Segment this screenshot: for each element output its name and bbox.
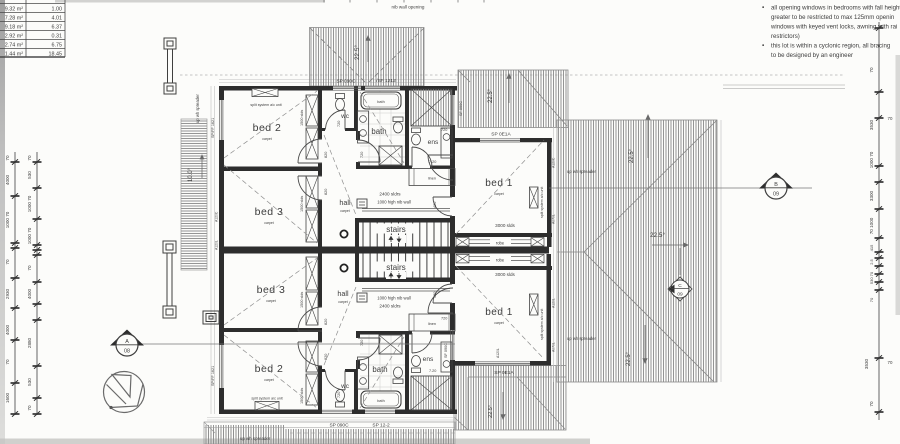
svg-text:nib wall opening: nib wall opening [392, 5, 425, 10]
svg-text:carpet: carpet [264, 378, 273, 382]
svg-text:carpet: carpet [338, 300, 347, 304]
svg-text:restrictors): restrictors) [771, 33, 800, 40]
svg-text:up wh spreader: up wh spreader [567, 336, 596, 341]
svg-text:420: 420 [433, 202, 437, 208]
svg-text:2.92 m²: 2.92 m² [5, 34, 23, 40]
svg-text:820: 820 [324, 354, 328, 360]
svg-text:3530: 3530 [864, 358, 869, 369]
svg-text:C: C [678, 283, 682, 289]
svg-text:720: 720 [441, 317, 447, 321]
svg-text:1500 slds: 1500 slds [300, 196, 304, 212]
svg-text:SP/FF 1621: SP/FF 1621 [211, 118, 215, 138]
svg-text:A: A [125, 339, 129, 345]
svg-text:ens: ens [428, 139, 439, 146]
svg-text:70: 70 [27, 405, 32, 411]
svg-text:1000 70: 1000 70 [869, 151, 874, 168]
svg-text:SF 090C: SF 090C [444, 343, 448, 358]
svg-text:720: 720 [441, 128, 447, 132]
svg-text:08: 08 [124, 349, 130, 355]
svg-text:18.45: 18.45 [49, 52, 63, 58]
svg-text:1600: 1600 [5, 392, 10, 403]
svg-text:70: 70 [27, 155, 32, 161]
svg-text:22.5°: 22.5° [488, 88, 494, 103]
svg-text:greater to be restricted to ma: greater to be restricted to max 125mm op… [771, 14, 894, 21]
svg-text:up wh spreader: up wh spreader [195, 94, 200, 123]
svg-text:1000 high nib wall: 1000 high nib wall [377, 296, 411, 301]
svg-text:A120L: A120L [215, 240, 219, 250]
svg-text:split system a/c unit: split system a/c unit [251, 397, 282, 401]
svg-text:bed 2: bed 2 [253, 122, 282, 134]
svg-text:3530: 3530 [869, 119, 874, 130]
svg-text:70: 70 [27, 265, 32, 271]
svg-text:6.37: 6.37 [52, 25, 63, 31]
svg-text:09: 09 [773, 192, 779, 198]
svg-text:carpet: carpet [340, 209, 349, 213]
svg-text:7.20: 7.20 [429, 369, 436, 373]
svg-text:A120L: A120L [496, 348, 500, 358]
svg-text:hall: hall [339, 198, 351, 207]
svg-text:SP 12-2: SP 12-2 [372, 423, 390, 429]
svg-text:70: 70 [888, 360, 893, 365]
svg-text:1000 70: 1000 70 [27, 195, 32, 212]
svg-text:bath: bath [377, 100, 384, 104]
svg-text:2.5: 2.5 [869, 258, 874, 264]
svg-text:70: 70 [869, 297, 874, 302]
svg-text:bath: bath [372, 365, 387, 374]
svg-text:530: 530 [27, 171, 32, 179]
svg-text:720: 720 [360, 152, 364, 158]
svg-text:up wh spreader: up wh spreader [240, 436, 271, 441]
svg-text:70: 70 [888, 116, 893, 121]
svg-text:/SF 1212: /SF 1212 [376, 78, 396, 84]
svg-text:22.5°: 22.5° [626, 351, 632, 366]
svg-text:linen: linen [428, 322, 436, 326]
svg-text:1000 high nib wall: 1000 high nib wall [377, 200, 411, 205]
svg-text:robe: robe [496, 257, 505, 262]
svg-text:70: 70 [869, 67, 874, 73]
svg-text:70: 70 [869, 401, 874, 407]
svg-text:3000 slds: 3000 slds [495, 223, 515, 228]
svg-text:70: 70 [5, 155, 10, 161]
svg-text:1000 70: 1000 70 [27, 227, 32, 244]
svg-text:1500 slds: 1500 slds [300, 292, 304, 308]
svg-text:bath: bath [377, 399, 384, 403]
svg-text:A120C: A120C [552, 157, 556, 168]
svg-text:bath: bath [371, 127, 386, 136]
svg-text:4000: 4000 [5, 324, 10, 335]
svg-text:SP 0E1A: SP 0E1A [494, 370, 514, 376]
svg-text:2.74 m²: 2.74 m² [5, 43, 23, 49]
svg-text:A070L: A070L [552, 342, 556, 352]
svg-text:up wh spreader: up wh spreader [567, 169, 596, 174]
svg-text:10.0°: 10.0° [188, 167, 194, 182]
svg-text:2880: 2880 [27, 337, 32, 348]
svg-text:SP 0E1A: SP 0E1A [491, 132, 511, 138]
svg-text:carpet: carpet [266, 299, 275, 303]
svg-text:1.44 m²: 1.44 m² [5, 52, 23, 58]
svg-text:SF 090C: SF 090C [459, 101, 463, 116]
svg-text:9.32 m²: 9.32 m² [5, 7, 23, 13]
svg-text:ens: ens [423, 356, 434, 363]
svg-text:robe: robe [496, 240, 505, 245]
svg-text:A120L: A120L [552, 298, 556, 308]
svg-text:4.01: 4.01 [52, 16, 63, 22]
svg-text:SP 090C: SP 090C [336, 79, 356, 85]
svg-text:415: 415 [869, 244, 874, 251]
svg-text:carpet: carpet [494, 321, 503, 325]
svg-text:carpet: carpet [262, 137, 271, 141]
svg-text:720: 720 [360, 340, 364, 346]
svg-text:820: 820 [324, 319, 328, 325]
svg-text:windows with keyed vent locks,: windows with keyed vent locks, awning wi… [770, 24, 897, 31]
svg-text:hall: hall [337, 289, 349, 298]
svg-text:820: 820 [324, 152, 328, 158]
svg-text:split system a/c unit: split system a/c unit [250, 103, 281, 107]
svg-text:A070L: A070L [552, 214, 556, 224]
svg-text:bed 3: bed 3 [257, 284, 286, 296]
svg-text:split system a/c unit: split system a/c unit [540, 309, 544, 340]
svg-text:530: 530 [27, 378, 32, 386]
svg-text:linen: linen [428, 177, 436, 181]
svg-text:70 1000: 70 1000 [869, 217, 874, 234]
svg-text:all opening windows in bedroom: all opening windows in bedrooms with fal… [771, 5, 900, 12]
svg-text:bed 3: bed 3 [255, 206, 284, 218]
svg-text:70: 70 [5, 359, 10, 365]
svg-text:820: 820 [324, 189, 328, 195]
svg-text:1000 70: 1000 70 [5, 211, 10, 228]
svg-text:0.31: 0.31 [52, 34, 63, 40]
svg-text:09: 09 [677, 292, 683, 298]
svg-text:70: 70 [5, 259, 10, 265]
svg-text:420: 420 [433, 292, 437, 298]
svg-text:530 70: 530 70 [869, 271, 874, 284]
svg-text:this lot is within a cyclonic: this lot is within a cyclonic region, al… [771, 43, 890, 50]
svg-text:6.75: 6.75 [52, 43, 63, 49]
svg-text:3300: 3300 [869, 190, 874, 201]
svg-text:22.5°: 22.5° [353, 45, 361, 60]
svg-text:stairs: stairs [386, 225, 406, 234]
svg-text:SP 090C: SP 090C [329, 423, 349, 429]
svg-text:B: B [774, 182, 778, 188]
svg-text:7.20: 7.20 [429, 160, 436, 164]
svg-text:to be designed by an engineer: to be designed by an engineer [771, 52, 853, 59]
svg-text:22.5°: 22.5° [629, 148, 635, 163]
svg-text:2400 sldrs: 2400 sldrs [379, 304, 401, 309]
svg-text:22.5°: 22.5° [650, 231, 665, 239]
svg-text:1500 slds: 1500 slds [300, 110, 304, 126]
svg-text:22.5°: 22.5° [488, 405, 494, 418]
svg-text:720: 720 [337, 121, 341, 127]
svg-text:2400 sldrs: 2400 sldrs [379, 192, 401, 197]
svg-text:3000 slds: 3000 slds [495, 272, 515, 277]
svg-text:carpet: carpet [264, 221, 273, 225]
svg-text:2930: 2930 [5, 288, 10, 299]
svg-text:4000: 4000 [27, 288, 32, 299]
svg-text:4000: 4000 [5, 174, 10, 185]
svg-text:stairs: stairs [386, 263, 406, 272]
svg-text:bed 1: bed 1 [485, 307, 513, 318]
svg-text:A120C: A120C [215, 211, 219, 222]
svg-text:SP/FF 1621: SP/FF 1621 [211, 366, 215, 386]
svg-text:split system a/c unit: split system a/c unit [540, 187, 544, 218]
svg-text:bed 2: bed 2 [255, 363, 284, 375]
svg-text:9.18 m²: 9.18 m² [5, 25, 23, 31]
svg-text:1.00: 1.00 [52, 7, 63, 13]
svg-text:bed 1: bed 1 [485, 178, 513, 189]
svg-text:7.28 m²: 7.28 m² [5, 16, 23, 22]
svg-text:720: 720 [337, 392, 341, 398]
svg-text:carpet: carpet [494, 192, 503, 196]
